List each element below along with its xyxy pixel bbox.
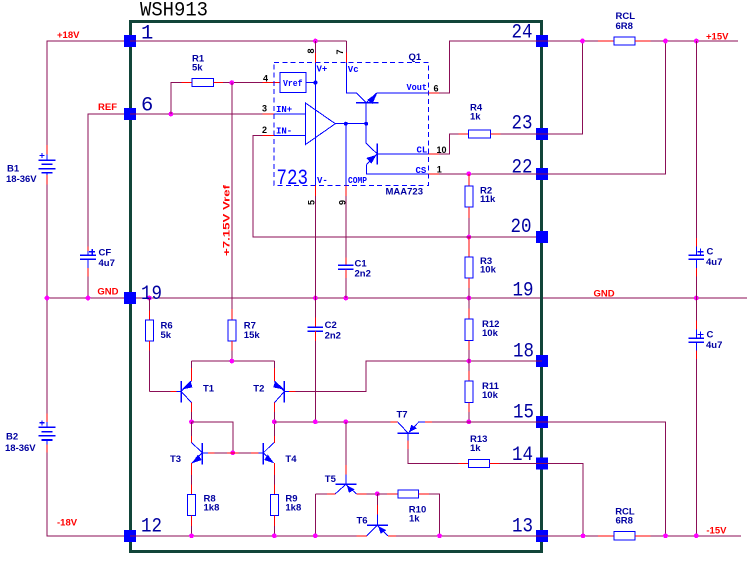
svg-text:1k8: 1k8 <box>204 503 220 514</box>
svg-text:+7.15V Vref: +7.15V Vref <box>222 184 233 256</box>
svg-text:18-36V: 18-36V <box>5 443 36 454</box>
svg-text:T7: T7 <box>397 410 408 421</box>
svg-text:+15V: +15V <box>706 32 729 43</box>
svg-text:Vc: Vc <box>348 65 359 75</box>
svg-text:T1: T1 <box>203 384 215 395</box>
svg-text:11k: 11k <box>480 194 496 205</box>
svg-text:C: C <box>707 247 714 258</box>
svg-text:REF: REF <box>98 102 117 113</box>
svg-text:T6: T6 <box>357 516 368 527</box>
svg-text:+18V: +18V <box>57 30 80 41</box>
svg-text:V-: V- <box>317 176 328 186</box>
svg-text:1: 1 <box>437 164 442 174</box>
svg-text:1: 1 <box>141 23 153 46</box>
svg-text:Vout: Vout <box>407 83 428 93</box>
svg-text:-15V: -15V <box>706 525 727 536</box>
svg-text:CF: CF <box>99 248 112 259</box>
svg-text:4u7: 4u7 <box>706 340 722 351</box>
svg-text:CS: CS <box>416 166 427 176</box>
svg-text:23: 23 <box>512 113 533 136</box>
svg-text:GND: GND <box>594 289 615 300</box>
svg-text:15: 15 <box>513 402 534 425</box>
svg-text:18-36V: 18-36V <box>6 174 37 185</box>
svg-text:15k: 15k <box>244 330 261 341</box>
svg-text:19: 19 <box>141 283 162 306</box>
svg-text:T2: T2 <box>253 384 264 395</box>
svg-text:1k: 1k <box>409 514 420 525</box>
svg-text:10k: 10k <box>482 328 499 339</box>
svg-text:1k: 1k <box>470 443 481 454</box>
svg-text:-18V: -18V <box>57 518 78 529</box>
svg-text:4u7: 4u7 <box>706 257 722 268</box>
svg-text:1k8: 1k8 <box>285 503 301 514</box>
svg-text:18: 18 <box>513 341 534 364</box>
svg-text:Vref: Vref <box>283 79 303 89</box>
svg-text:6R8: 6R8 <box>616 516 633 527</box>
svg-text:6: 6 <box>434 84 439 94</box>
svg-text:V+: V+ <box>317 65 328 75</box>
svg-text:10k: 10k <box>480 265 497 276</box>
svg-text:5k: 5k <box>161 330 172 341</box>
svg-text:IN-: IN- <box>276 127 292 137</box>
svg-text:1k: 1k <box>470 112 481 123</box>
svg-text:4: 4 <box>263 74 268 84</box>
svg-text:MAA723: MAA723 <box>386 187 424 198</box>
svg-text:IN+: IN+ <box>276 105 292 115</box>
svg-text:COMP: COMP <box>348 176 368 186</box>
svg-text:4u7: 4u7 <box>99 258 115 269</box>
svg-text:3: 3 <box>262 104 267 114</box>
svg-text:7: 7 <box>335 49 345 54</box>
svg-text:GND: GND <box>97 287 118 298</box>
svg-text:10k: 10k <box>482 390 499 401</box>
svg-text:20: 20 <box>511 216 532 239</box>
svg-text:T4: T4 <box>285 454 297 465</box>
svg-text:13: 13 <box>512 516 533 539</box>
svg-text:6R8: 6R8 <box>616 21 633 32</box>
svg-text:C2: C2 <box>325 320 337 331</box>
svg-text:19: 19 <box>513 280 534 303</box>
svg-text:5k: 5k <box>192 63 203 74</box>
svg-text:2: 2 <box>262 125 267 135</box>
svg-text:Q1: Q1 <box>409 52 422 63</box>
svg-text:8: 8 <box>306 48 316 53</box>
svg-text:22: 22 <box>512 157 533 180</box>
svg-text:T5: T5 <box>325 474 337 485</box>
svg-text:12: 12 <box>141 516 162 539</box>
svg-text:2n2: 2n2 <box>325 331 341 342</box>
svg-text:C: C <box>707 329 714 340</box>
svg-text:B2: B2 <box>6 432 18 443</box>
svg-text:723: 723 <box>277 165 309 191</box>
svg-text:T3: T3 <box>170 454 181 465</box>
svg-text:WSH913: WSH913 <box>140 0 208 23</box>
svg-text:2n2: 2n2 <box>355 269 371 280</box>
svg-text:B1: B1 <box>7 164 20 175</box>
